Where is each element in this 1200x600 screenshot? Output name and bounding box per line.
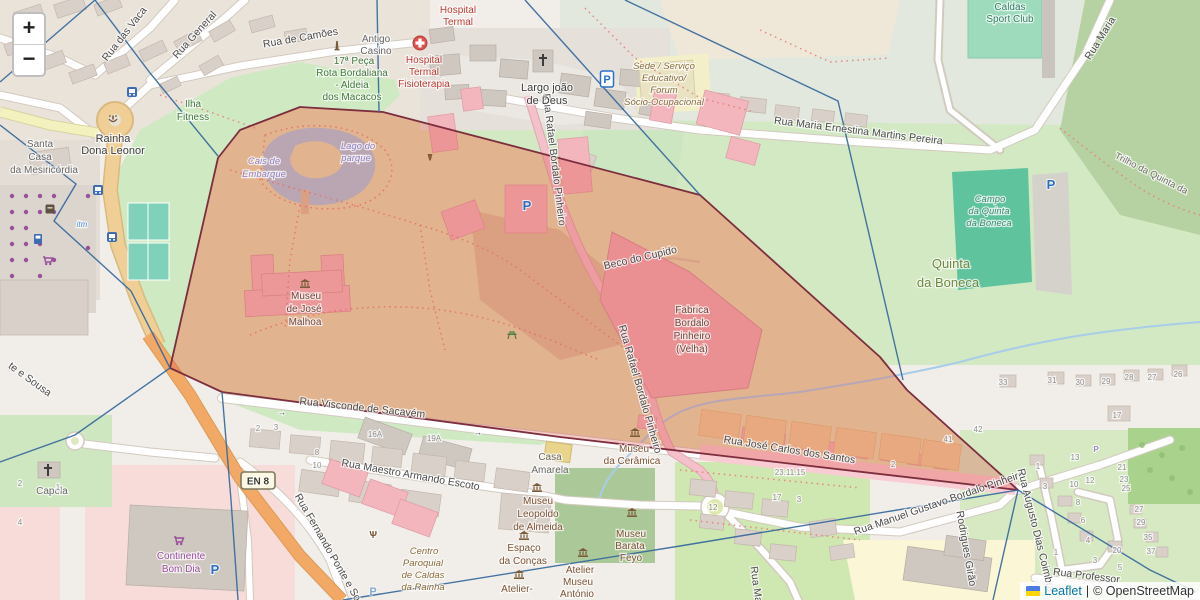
housenumber-label: 3 <box>1043 482 1048 491</box>
housenumber-label: 33 <box>999 378 1008 387</box>
map-label: António <box>560 589 594 600</box>
housenumber-label: 29 <box>1102 377 1111 386</box>
housenumber-label: 27 <box>1135 505 1144 514</box>
map-label: itm <box>77 220 88 229</box>
map-label: Casa <box>28 152 52 163</box>
map-label: da Mesiricórdia <box>10 165 78 176</box>
housenumber-label: 23.11.15 <box>775 468 806 477</box>
map-label: Educativo/ <box>642 73 688 84</box>
map-label: 17ª Peça <box>334 56 375 67</box>
svg-text:EN 8: EN 8 <box>247 477 270 488</box>
highway-badge: EN 8 <box>241 472 275 489</box>
housenumber-label: 5 <box>1118 563 1123 572</box>
housenumber-label: 26 <box>1174 370 1183 379</box>
map-label: Fitness <box>177 112 209 123</box>
map-label: Casa <box>538 452 562 463</box>
housenumber-label: 3 <box>797 495 802 504</box>
attribution-separator: | <box>1086 584 1089 598</box>
map-label: Centro <box>410 546 439 557</box>
housenumber-label: 42 <box>974 425 983 434</box>
parking-boxed-icon: P <box>601 71 614 87</box>
leaflet-link[interactable]: Leaflet <box>1044 584 1082 598</box>
map-label: da Rainha <box>401 582 444 593</box>
map-label: Sport Club <box>986 14 1034 25</box>
map-label: Antigo <box>362 34 391 45</box>
housenumber-label: 21 <box>1118 463 1127 472</box>
map-label: Sede / Serviço <box>633 61 695 72</box>
parking-icon: P <box>211 562 220 577</box>
housenumber-label: 28 <box>1125 373 1134 382</box>
map-label: Barata <box>615 541 645 552</box>
map-label: Sócio-Ocupacional <box>624 97 705 108</box>
map-label: Embarque <box>242 169 286 180</box>
bus-stop-icon <box>93 185 103 195</box>
housenumber-label: 17 <box>1113 411 1122 420</box>
housenumber-label: 8 <box>1076 498 1081 507</box>
svg-text:P: P <box>1047 177 1056 192</box>
zoom-in-button[interactable]: + <box>14 14 44 44</box>
parking-icon: P <box>1047 177 1056 192</box>
oneway-arrow-icon: → <box>473 426 483 437</box>
parking-icon: P <box>369 586 376 598</box>
map-label: Museu <box>619 444 649 455</box>
housenumber-label: 1 <box>1054 548 1059 557</box>
housenumber-label: 4 <box>1086 536 1091 545</box>
map-label: Cais de <box>248 156 280 167</box>
map-label: Hospital <box>440 5 476 16</box>
housenumber-label: 10 <box>313 461 322 470</box>
svg-text:P: P <box>523 198 532 213</box>
housenumber-label: 41 <box>944 435 953 444</box>
map-label: Capela <box>36 486 68 497</box>
zoom-control: + − <box>12 12 46 77</box>
kiosk-icon <box>46 205 55 214</box>
map-label: de Almeida <box>513 522 563 533</box>
svg-text:→: → <box>473 426 483 437</box>
housenumber-label: 2 <box>18 479 23 488</box>
map-label: Forum <box>650 85 678 96</box>
map-label: de Deus <box>527 95 568 107</box>
map-label: Espaço <box>507 543 541 554</box>
map-canvas[interactable]: PPPPPPѰ→→EN 8 Rua das VacaRua GeneralRua… <box>0 0 1200 600</box>
map-label: da Conças <box>499 556 547 567</box>
map-label: Caldas <box>994 2 1025 13</box>
map-label: Atelier <box>566 565 595 576</box>
fuel-icon <box>34 234 42 244</box>
map-label: Rainha <box>96 133 132 145</box>
map-label: de José <box>286 304 321 315</box>
housenumber-label: 17 <box>773 493 782 502</box>
leaflet-map[interactable]: PPPPPPѰ→→EN 8 Rua das VacaRua GeneralRua… <box>0 0 1200 600</box>
map-label: Museu <box>563 577 593 588</box>
housenumber-label: 23 <box>1120 475 1129 484</box>
housenumber-label: 1 <box>56 483 61 492</box>
housenumber-label: 30 <box>1076 378 1085 387</box>
map-label: Quinta <box>932 256 971 271</box>
housenumber-label: 4 <box>18 518 23 527</box>
housenumber-label: 2 <box>891 460 896 469</box>
osm-attribution-link[interactable]: © OpenStreetMap <box>1093 584 1194 598</box>
housenumber-label: 25 <box>1122 484 1131 493</box>
map-label: Hospital <box>406 55 442 66</box>
housenumber-label: 1 <box>1036 462 1041 471</box>
map-label: da Cerâmica <box>604 456 661 467</box>
map-label: Museu <box>616 529 646 540</box>
map-label: Atelier- <box>501 584 533 595</box>
map-label: Campo <box>975 194 1006 205</box>
map-label: Santa <box>27 139 54 150</box>
map-label: Largo joão <box>521 82 573 94</box>
oneway-arrow-icon: → <box>277 407 287 418</box>
map-label: dos Macacos <box>323 92 382 103</box>
housenumber-label: 29 <box>1137 518 1146 527</box>
svg-text:P: P <box>1093 445 1099 454</box>
map-label: Termal <box>443 17 473 28</box>
map-label: Museu <box>291 291 321 302</box>
housenumber-label: 12 <box>709 503 718 512</box>
map-label: Continente <box>157 551 206 562</box>
bus-stop-icon <box>127 87 137 97</box>
map-label: da Boneca <box>966 218 1011 229</box>
housenumber-label: 3 <box>1093 556 1098 565</box>
map-label: Lago do <box>341 141 375 152</box>
svg-text:→: → <box>277 407 287 418</box>
map-label: Fabrica <box>675 305 709 316</box>
housenumber-label: 6 <box>1081 516 1086 525</box>
map-label: Bordalo <box>675 318 710 329</box>
svg-text:Ѱ: Ѱ <box>369 530 377 541</box>
housenumber-label: 37 <box>1147 547 1156 556</box>
map-label: Fisioterapia <box>398 79 450 90</box>
map-label: Malhoa <box>289 317 322 328</box>
map-label: Termal <box>409 67 439 78</box>
housenumber-label: 3 <box>274 423 279 432</box>
housenumber-label: 16A <box>368 430 383 439</box>
map-label: Leopoldo <box>517 509 559 520</box>
map-label: Paroquial <box>403 558 444 569</box>
map-label: de Caldas <box>402 570 445 581</box>
housenumber-label: 20 <box>1113 546 1122 555</box>
housenumber-label: 2 <box>256 424 261 433</box>
ukraine-flag-icon <box>1026 586 1040 596</box>
housenumber-label: 8 <box>315 448 320 457</box>
svg-text:P: P <box>369 586 376 598</box>
parking-icon: P <box>523 198 532 213</box>
housenumber-label: 35 <box>1144 533 1153 542</box>
housenumber-label: 19A <box>427 434 442 443</box>
map-label: Bom Dia <box>162 564 201 575</box>
hospital-icon <box>413 36 427 50</box>
map-label: Museu <box>523 496 553 507</box>
map-label: da Quinta <box>968 206 1009 217</box>
housenumber-label: 13 <box>1071 453 1080 462</box>
map-label: Feyo <box>620 553 643 564</box>
map-label: Amarela <box>531 465 569 476</box>
map-label: (Velha) <box>676 344 708 355</box>
map-label: Dona Leonor <box>81 145 145 157</box>
bus-stop-icon <box>107 232 117 242</box>
worship-icon: Ѱ <box>369 530 377 541</box>
svg-text:P: P <box>211 562 220 577</box>
housenumber-label: 10 <box>1070 480 1079 489</box>
housenumber-label: 12 <box>1086 476 1095 485</box>
housenumber-label: 31 <box>1048 376 1057 385</box>
housenumber-label: 27 <box>1148 373 1157 382</box>
map-label: - Aldeia <box>335 80 369 91</box>
map-label: Pinheiro <box>674 331 711 342</box>
map-label: Rota Bordaliana <box>316 68 388 79</box>
svg-text:P: P <box>603 74 610 86</box>
map-label: Ilha <box>185 99 202 110</box>
attribution-bar: Leaflet|© OpenStreetMap <box>1020 582 1200 600</box>
private-parking-icon: P <box>1093 445 1099 454</box>
zoom-out-button[interactable]: − <box>14 45 44 75</box>
map-label: da Boneca <box>917 275 980 290</box>
map-label: parque <box>340 153 371 164</box>
